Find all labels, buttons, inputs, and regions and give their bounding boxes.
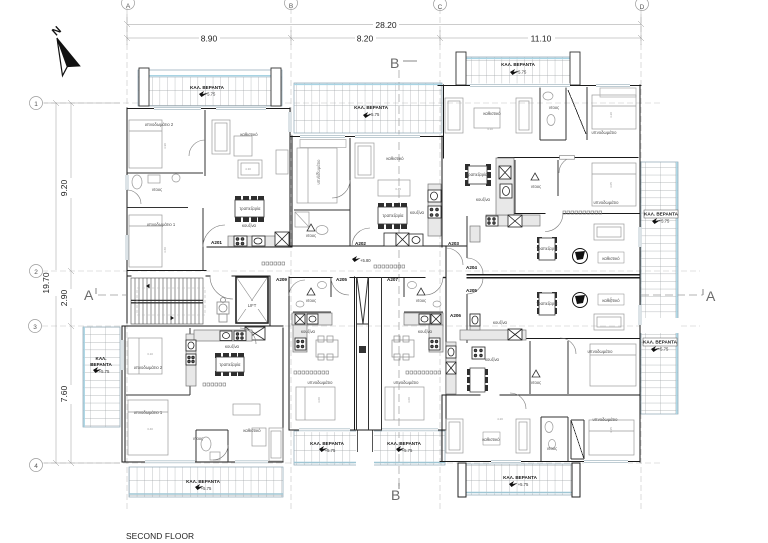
svg-text:+5.75: +5.75	[325, 448, 336, 453]
svg-text:+5.75: +5.75	[659, 219, 670, 224]
svg-text:τραπεζαρία: τραπεζαρία	[537, 301, 559, 306]
svg-text:B: B	[390, 55, 399, 71]
svg-text:A205: A205	[466, 288, 477, 293]
svg-text:κουζίνα: κουζίνα	[242, 223, 257, 228]
svg-text:A: A	[84, 287, 94, 303]
svg-text:2.70: 2.70	[315, 172, 319, 178]
svg-text:9.20: 9.20	[59, 179, 69, 196]
svg-text:κουζίνα: κουζίνα	[418, 329, 433, 334]
svg-text:4.20: 4.20	[497, 417, 503, 421]
svg-text:τραπεζαρία: τραπεζαρία	[467, 172, 489, 177]
svg-text:A207: A207	[387, 277, 398, 282]
svg-text:τραπεζαρία: τραπεζαρία	[220, 362, 242, 367]
svg-text:4: 4	[34, 463, 38, 470]
svg-text:4.10: 4.10	[487, 127, 493, 131]
svg-text:κουζίνα: κουζίνα	[301, 329, 316, 334]
svg-text:καθιστικό: καθιστικό	[482, 437, 500, 442]
svg-text:3.05: 3.05	[609, 297, 613, 303]
svg-text:υπνοδωμάτιο: υπνοδωμάτιο	[594, 200, 620, 205]
svg-text:1: 1	[34, 101, 38, 108]
svg-text:D: D	[640, 4, 645, 11]
svg-text:3.40: 3.40	[147, 427, 153, 431]
svg-text:ΚΑΛ. ΒΕΡΑΝΤΑ: ΚΑΛ. ΒΕΡΑΝΤΑ	[644, 212, 678, 217]
svg-text:καθιστικό: καθιστικό	[483, 111, 501, 116]
svg-text:3.05: 3.05	[609, 182, 613, 188]
svg-text:ΚΑΛ. ΒΕΡΑΝΤΑ: ΚΑΛ. ΒΕΡΑΝΤΑ	[387, 441, 421, 446]
svg-text:ΚΑΛ. ΒΕΡΑΝΤΑ: ΚΑΛ. ΒΕΡΑΝΤΑ	[354, 105, 388, 110]
svg-text:τραπεζαρία: τραπεζαρία	[537, 246, 559, 251]
svg-text:28.20: 28.20	[375, 20, 397, 30]
svg-text:υπνοδωμάτιο 2: υπνοδωμάτιο 2	[145, 122, 174, 127]
svg-text:B: B	[289, 3, 293, 10]
svg-text:καθιστικό: καθιστικό	[386, 156, 404, 161]
svg-text:4.30: 4.30	[245, 167, 251, 171]
svg-text:A: A	[706, 288, 716, 304]
svg-text:+5.75: +5.75	[205, 92, 216, 97]
svg-text:υπνοδωμάτιο 2: υπνοδωμάτιο 2	[134, 365, 163, 370]
svg-text:LIFT: LIFT	[248, 303, 257, 308]
svg-text:τραπεζαρία: τραπεζαρία	[240, 206, 262, 211]
svg-text:ΚΑΛ. ΒΕΡΑΝΤΑ: ΚΑΛ. ΒΕΡΑΝΤΑ	[190, 85, 224, 90]
svg-text:ΚΑΛ.: ΚΑΛ.	[96, 356, 107, 361]
svg-text:3.00: 3.00	[317, 397, 321, 403]
svg-text:+5.75: +5.75	[518, 482, 529, 487]
svg-text:ΒΕΡΑΝΤΑ: ΒΕΡΑΝΤΑ	[90, 362, 112, 367]
svg-text:τραπεζαρία: τραπεζαρία	[383, 213, 405, 218]
svg-text:ΚΑΛ. ΒΕΡΑΝΤΑ: ΚΑΛ. ΒΕΡΑΝΤΑ	[503, 475, 537, 480]
svg-text:19.70: 19.70	[41, 272, 51, 294]
svg-text:11.10: 11.10	[531, 34, 552, 44]
svg-text:ντους: ντους	[152, 187, 162, 192]
svg-text:3.15: 3.15	[609, 427, 613, 433]
svg-text:καθιστικό: καθιστικό	[243, 428, 261, 433]
svg-text:ντους: ντους	[531, 380, 541, 385]
svg-text:A204: A204	[466, 265, 477, 270]
svg-text:+5.75: +5.75	[658, 347, 669, 352]
svg-text:ντους: ντους	[549, 105, 559, 110]
svg-text:κουζίνα: κουζίνα	[225, 344, 240, 349]
svg-text:A: A	[126, 3, 131, 10]
svg-text:υπνοδωμάτιο: υπνοδωμάτιο	[592, 130, 618, 135]
svg-text:καθιστικό: καθιστικό	[602, 256, 620, 261]
svg-text:C: C	[438, 4, 443, 11]
svg-text:υπνοδωμάτιο: υπνοδωμάτιο	[316, 159, 321, 185]
svg-text:καθιστικό: καθιστικό	[240, 132, 258, 137]
svg-text:ντους: ντους	[193, 436, 203, 441]
svg-text:3.60: 3.60	[163, 247, 167, 253]
svg-text:κουζίνα: κουζίνα	[410, 210, 425, 215]
svg-text:B: B	[391, 487, 400, 503]
svg-text:A205: A205	[336, 277, 347, 282]
svg-text:A201: A201	[211, 240, 222, 245]
svg-text:ΚΑΛ. ΒΕΡΑΝΤΑ: ΚΑΛ. ΒΕΡΑΝΤΑ	[186, 479, 220, 484]
svg-text:3: 3	[33, 324, 37, 331]
svg-text:κουζίνα: κουζίνα	[485, 357, 500, 362]
svg-text:3.90: 3.90	[163, 143, 167, 149]
svg-text:A209: A209	[276, 277, 287, 282]
svg-text:υπνοδωμάτιο: υπνοδωμάτιο	[588, 349, 614, 354]
svg-text:A203: A203	[448, 241, 459, 246]
svg-text:+5.75: +5.75	[516, 70, 527, 75]
svg-text:κουζίνα: κουζίνα	[476, 197, 491, 202]
svg-text:3.45: 3.45	[395, 187, 401, 191]
svg-text:+5.75: +5.75	[201, 486, 212, 491]
svg-text:ΚΑΛ. ΒΕΡΑΝΤΑ: ΚΑΛ. ΒΕΡΑΝΤΑ	[643, 340, 677, 345]
svg-text:2.90: 2.90	[59, 289, 69, 306]
svg-text:+5.80: +5.80	[360, 258, 371, 263]
svg-text:ΚΑΛ. ΒΕΡΑΝΤΑ: ΚΑΛ. ΒΕΡΑΝΤΑ	[501, 62, 535, 67]
svg-text:ντους: ντους	[547, 446, 557, 451]
svg-text:3.20: 3.20	[609, 112, 613, 118]
svg-text:3.00: 3.00	[407, 397, 411, 403]
svg-text:ντους: ντους	[306, 298, 316, 303]
svg-text:ντους: ντους	[416, 298, 426, 303]
svg-text:8.20: 8.20	[357, 34, 374, 44]
svg-text:SECOND FLOOR: SECOND FLOOR	[126, 531, 194, 541]
svg-text:ΚΑΛ. ΒΕΡΑΝΤΑ: ΚΑΛ. ΒΕΡΑΝΤΑ	[310, 441, 344, 446]
svg-text:A206: A206	[450, 313, 461, 318]
svg-text:υπνοδωμάτιο 1: υπνοδωμάτιο 1	[147, 222, 176, 227]
svg-text:+5.75: +5.75	[402, 448, 413, 453]
svg-text:+5.75: +5.75	[99, 369, 110, 374]
svg-text:υπνοδωμάτιο: υπνοδωμάτιο	[394, 380, 420, 385]
svg-text:κουζίνα: κουζίνα	[493, 320, 508, 325]
svg-text:2: 2	[34, 269, 38, 276]
svg-text:8.90: 8.90	[201, 34, 218, 44]
svg-text:3.10: 3.10	[147, 352, 153, 356]
svg-text:υπνοδωμάτιο: υπνοδωμάτιο	[593, 417, 619, 422]
svg-text:ντους: ντους	[531, 184, 541, 189]
svg-text:ντους: ντους	[306, 233, 316, 238]
svg-text:A202: A202	[355, 241, 366, 246]
svg-text:υπνοδωμάτιο 1: υπνοδωμάτιο 1	[134, 410, 163, 415]
svg-text:υπνοδωμάτιο: υπνοδωμάτιο	[308, 380, 334, 385]
svg-text:7.60: 7.60	[59, 385, 69, 402]
